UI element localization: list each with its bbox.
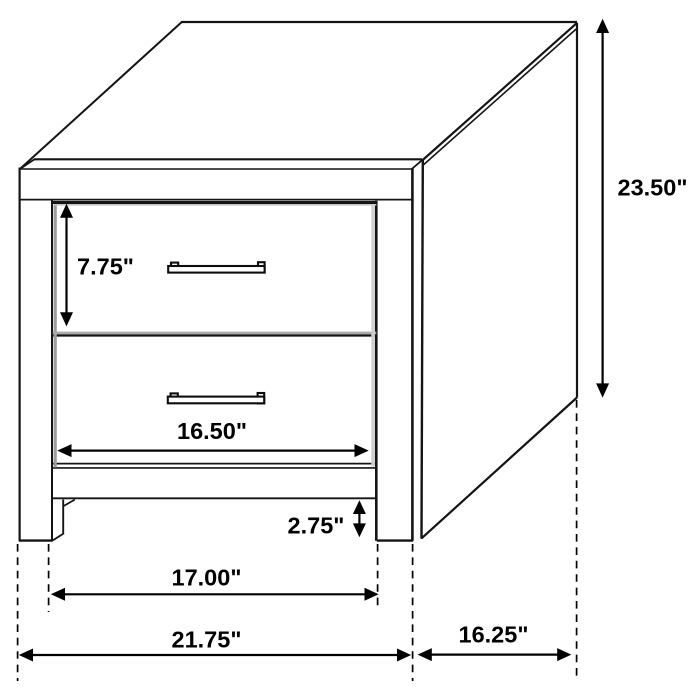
svg-text:2.75": 2.75"	[288, 513, 345, 539]
svg-text:21.75": 21.75"	[172, 627, 242, 653]
svg-text:23.50": 23.50"	[618, 174, 688, 200]
svg-text:17.00": 17.00"	[172, 564, 242, 590]
svg-text:16.50": 16.50"	[177, 418, 247, 444]
svg-text:7.75": 7.75"	[77, 254, 134, 280]
svg-text:16.25": 16.25"	[459, 622, 529, 648]
